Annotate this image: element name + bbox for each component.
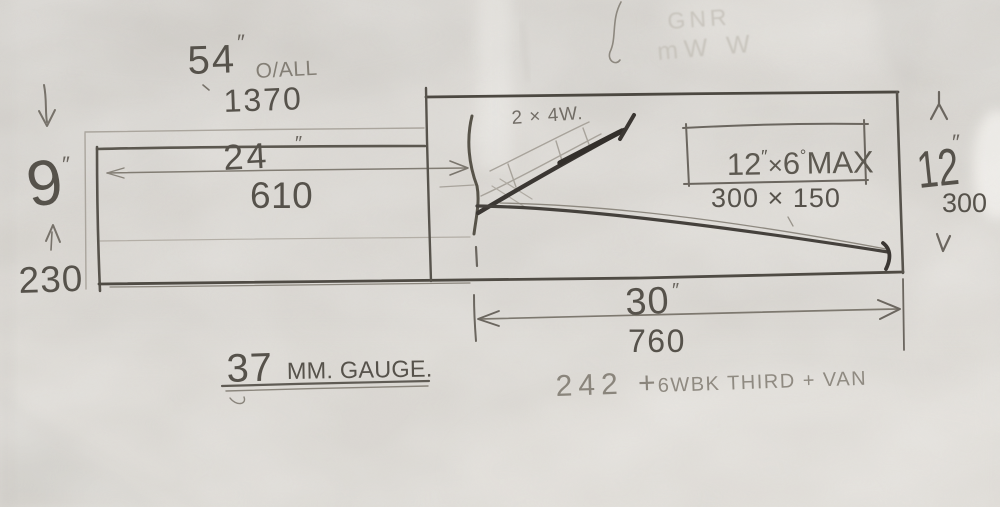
svg-text:230: 230: [18, 258, 84, 301]
svg-text:610: 610: [250, 175, 313, 216]
svg-text:″: ″: [237, 30, 245, 55]
svg-text:760: 760: [628, 323, 686, 359]
svg-text:GNR: GNR: [667, 4, 732, 34]
svg-text:″: ″: [672, 280, 679, 302]
svg-text:MM. GAUGE.: MM. GAUGE.: [287, 355, 433, 384]
svg-text:30: 30: [624, 280, 670, 324]
svg-text:54: 54: [187, 37, 237, 83]
svg-text:1370: 1370: [223, 80, 303, 119]
svg-text:″: ″: [295, 133, 302, 155]
svg-text:″: ″: [62, 152, 70, 177]
svg-text:37: 37: [226, 345, 274, 391]
svg-text:300: 300: [942, 188, 987, 218]
svg-text:242 +: 242 +: [555, 366, 662, 403]
svg-text:O/ALL: O/ALL: [255, 57, 318, 83]
svg-text:″: ″: [952, 130, 960, 155]
svg-text:300 × 150: 300 × 150: [711, 183, 841, 213]
svg-text:24: 24: [222, 135, 270, 178]
